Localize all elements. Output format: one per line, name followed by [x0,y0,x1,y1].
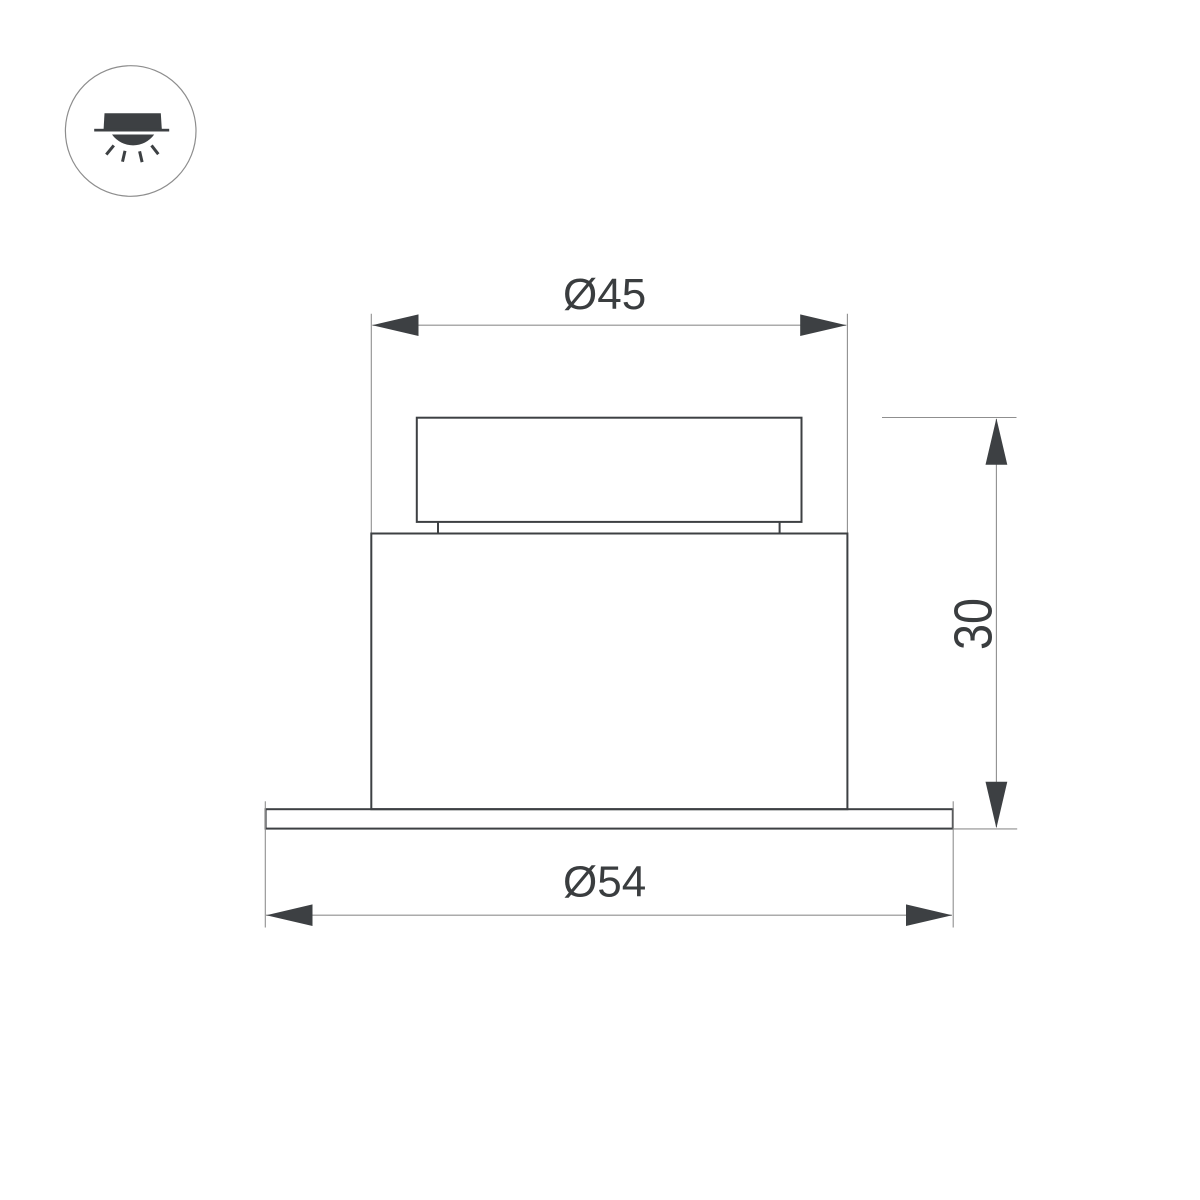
svg-text:30: 30 [943,598,1003,650]
svg-text:Ø45: Ø45 [563,270,646,319]
svg-text:Ø54: Ø54 [563,858,646,907]
